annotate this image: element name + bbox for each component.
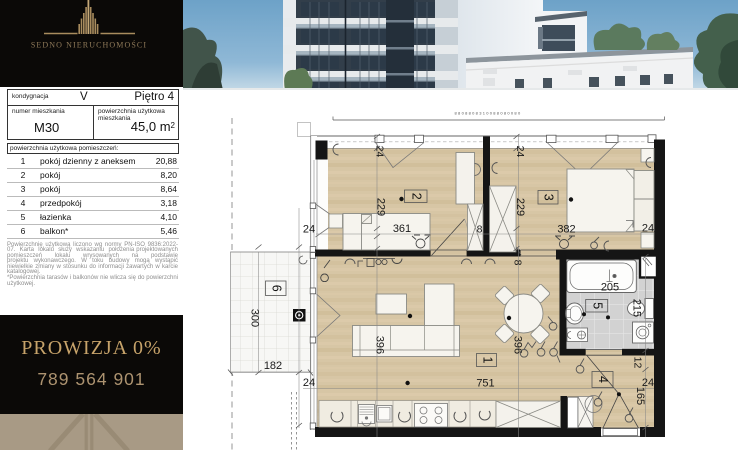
svg-text:12: 12 (632, 357, 644, 369)
svg-text:4: 4 (596, 376, 610, 383)
svg-text:396: 396 (374, 336, 386, 354)
svg-text:3: 3 (542, 194, 556, 201)
svg-text:24: 24 (642, 223, 654, 235)
svg-text:361: 361 (393, 223, 411, 235)
svg-text:229: 229 (514, 198, 526, 216)
svg-text:300: 300 (249, 309, 261, 327)
svg-text:165: 165 (634, 387, 646, 405)
svg-text:24: 24 (303, 224, 315, 236)
svg-text:2: 2 (409, 193, 423, 200)
svg-text:24: 24 (642, 377, 654, 389)
svg-text:215: 215 (631, 299, 643, 317)
svg-text:5: 5 (590, 302, 604, 309)
svg-text:396: 396 (512, 336, 524, 354)
svg-text:1: 1 (480, 357, 494, 364)
svg-text:751: 751 (476, 378, 494, 390)
svg-text:8: 8 (477, 224, 483, 236)
svg-text:8: 8 (512, 260, 524, 266)
svg-text:24: 24 (374, 146, 386, 158)
svg-text:24: 24 (514, 146, 526, 158)
svg-text:24: 24 (303, 377, 315, 389)
svg-text:382: 382 (557, 224, 575, 236)
svg-text:229: 229 (375, 198, 387, 216)
svg-text:205: 205 (601, 282, 619, 294)
svg-text:8808808310088080080: 8808808310088080080 (455, 111, 522, 116)
svg-text:182: 182 (264, 360, 282, 372)
svg-text:6: 6 (269, 285, 283, 292)
